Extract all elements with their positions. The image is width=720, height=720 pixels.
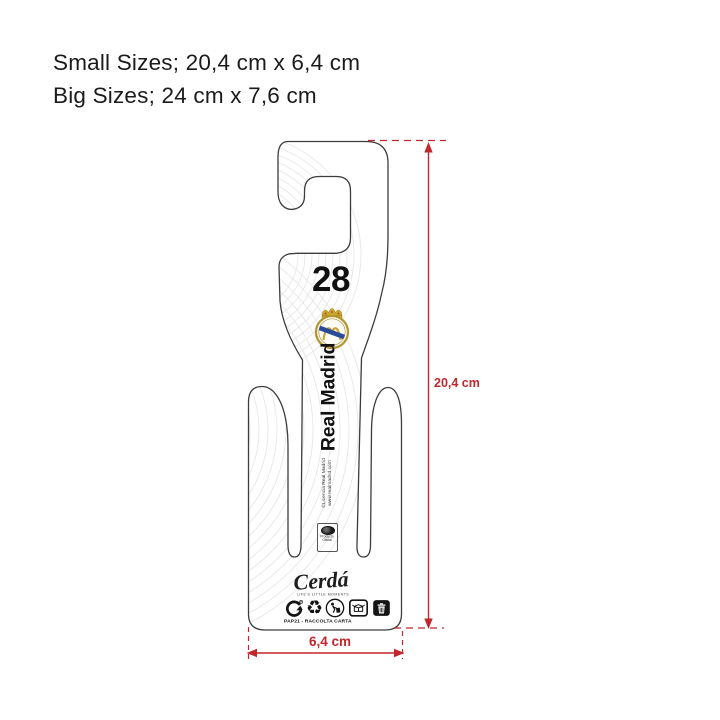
team-name: Real Madrid — [318, 343, 341, 451]
tidyman-icon — [325, 598, 345, 618]
brand-logo: Cerdá — [293, 566, 350, 596]
mobius-loop-icon: ♻ — [306, 598, 323, 618]
height-arrow-up — [424, 142, 432, 153]
paper-packaging-icon — [347, 598, 370, 618]
player-number: 28 — [312, 260, 350, 300]
product-spec-image: Small Sizes; 20,4 cm x 6,4 cm Big Sizes;… — [0, 0, 720, 720]
recycling-code-label: PAP21 - RACCOLTA CARTA — [284, 618, 352, 624]
stamp-line-2: Oficial — [323, 538, 332, 542]
brand-tagline: LIFE'S LITTLE MOMENTS — [297, 593, 349, 597]
eco-icons-row: ♻ — [283, 598, 391, 618]
license-line-2: www.realmadrid.com — [327, 457, 333, 509]
height-dimension-label: 20,4 cm — [434, 376, 480, 390]
stamp-emblem-icon — [321, 526, 335, 536]
width-dimension-label: 6,4 cm — [309, 634, 351, 649]
official-product-stamp: Producto Oficial — [317, 523, 338, 552]
recyclable-arrows-icon — [283, 599, 304, 618]
waste-bin-icon — [372, 598, 391, 618]
license-text: ©Licencia Real Madrid www.realmadrid.com — [321, 457, 333, 509]
